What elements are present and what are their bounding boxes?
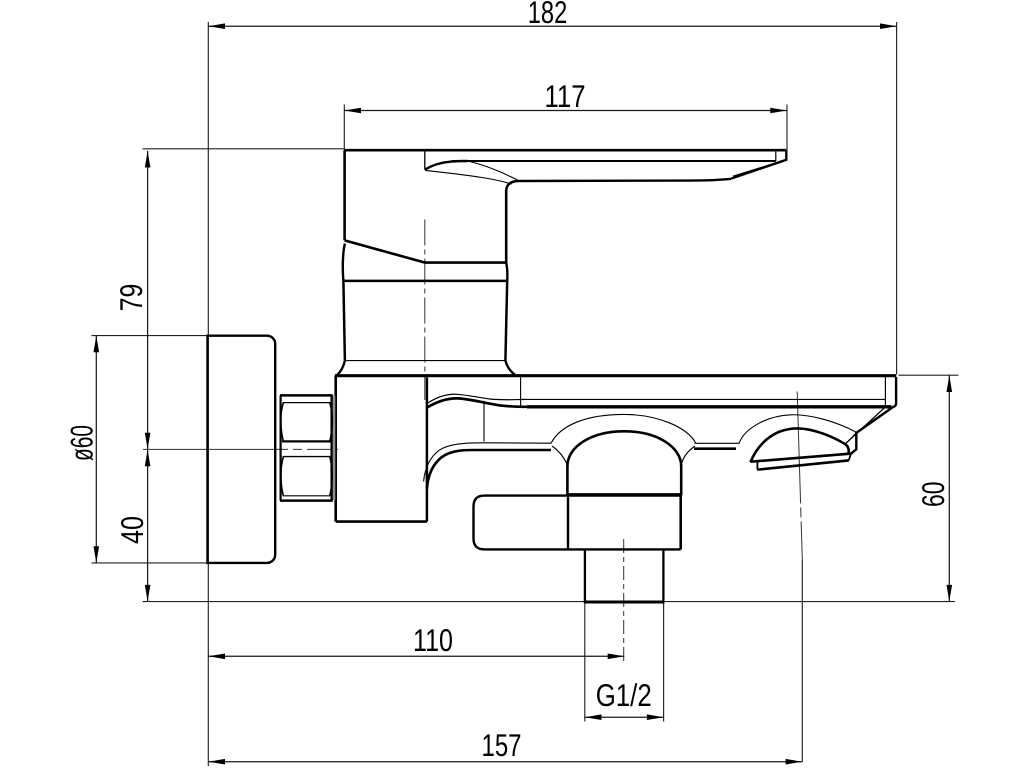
svg-text:182: 182 (528, 0, 568, 30)
svg-text:G1/2: G1/2 (596, 677, 652, 713)
svg-text:60: 60 (915, 481, 951, 507)
svg-text:40: 40 (114, 516, 150, 544)
svg-text:157: 157 (482, 727, 522, 763)
svg-text:ø60: ø60 (64, 425, 100, 461)
svg-text:117: 117 (545, 78, 586, 114)
svg-text:110: 110 (413, 622, 453, 658)
svg-text:79: 79 (113, 284, 149, 312)
